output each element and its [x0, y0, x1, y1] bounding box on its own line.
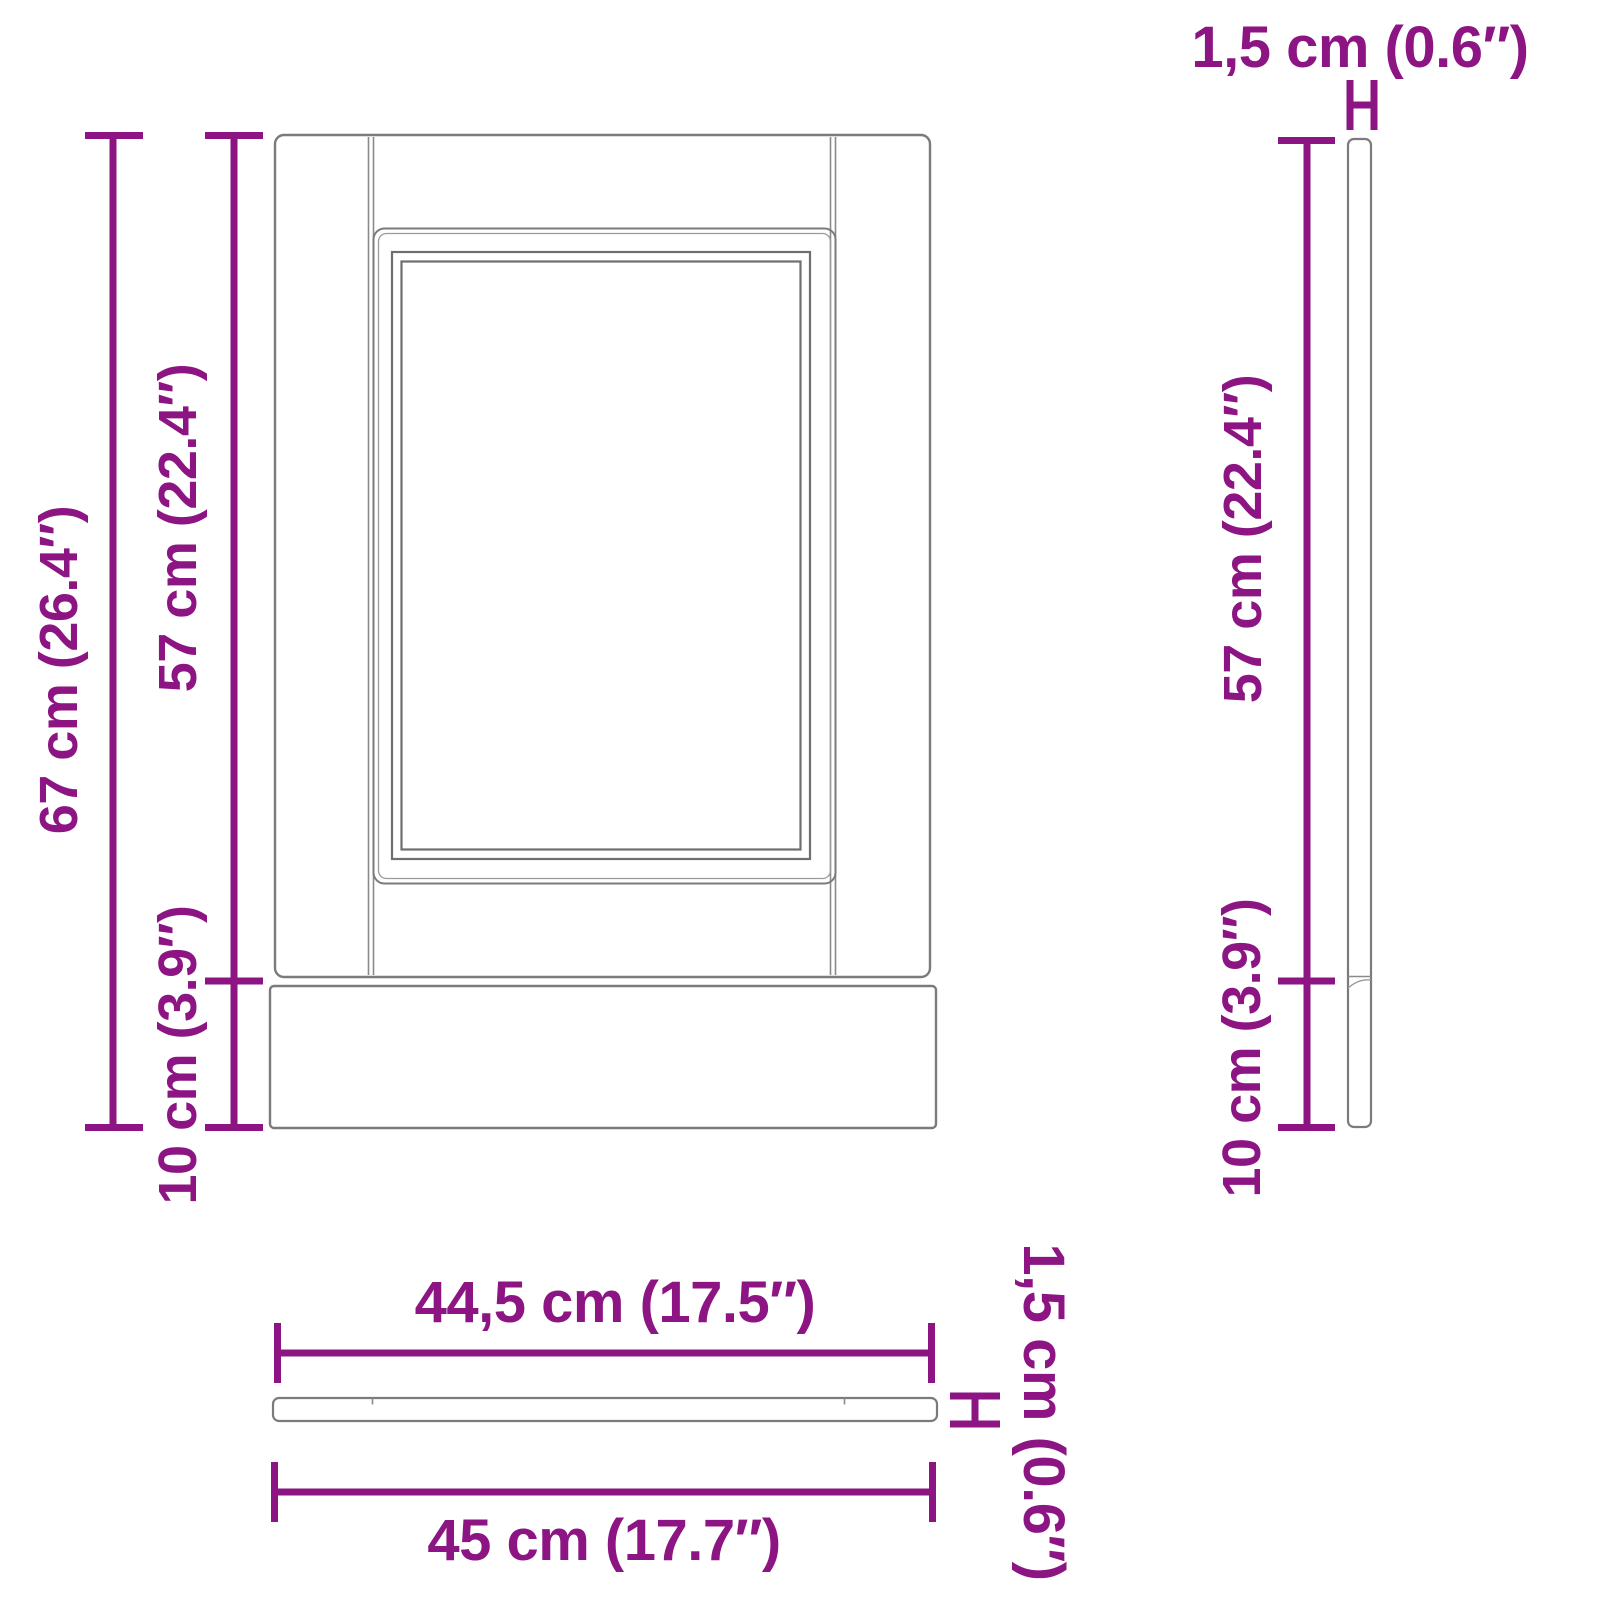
bottom-total-width-cap-right [929, 1462, 936, 1522]
bottom-door-width-cap-left [274, 1323, 281, 1383]
front-total-height-cap-top [85, 132, 143, 139]
side-height-cap-bottom [1278, 1124, 1335, 1131]
bottom-total-width-line [275, 1489, 933, 1496]
front-door-height-cap-top [205, 132, 263, 139]
dimension-diagram: 67 cm (26.4″) 57 cm (22.4″) 10 cm (3.9″) [0, 0, 1600, 1600]
side-height-dimension: 57 cm (22.4″) 10 cm (3.9″) [1212, 137, 1335, 1198]
side-view: 1,5 cm (0.6″) 57 cm (22.4″) 10 cm (3.9″) [1191, 15, 1528, 1198]
front-plinth-height-label: 10 cm (3.9″) [148, 905, 208, 1204]
front-total-height-dimension: 67 cm (26.4″) [29, 132, 143, 1131]
front-door-height-cap-bottom [205, 1124, 263, 1131]
front-total-height-cap-bottom [85, 1124, 143, 1131]
side-height-tick [1278, 978, 1335, 985]
front-door-height-tick [205, 978, 263, 985]
bottom-thickness-label: 1,5 cm (0.6″) [1011, 1243, 1076, 1580]
side-thickness-label: 1,5 cm (0.6″) [1191, 15, 1528, 80]
bottom-view: 44,5 cm (17.5″) 45 cm (17.7″) 1,5 cm (0.… [271, 1243, 1076, 1580]
side-height-cap-top [1278, 137, 1335, 144]
bottom-total-width-cap-left [271, 1462, 278, 1522]
front-total-height-label: 67 cm (26.4″) [29, 506, 89, 835]
bottom-thickness-connector [972, 1396, 979, 1424]
bottom-total-width-label: 45 cm (17.7″) [427, 1508, 780, 1573]
side-thickness-connector [1347, 102, 1378, 109]
side-thickness-dimension: 1,5 cm (0.6″) [1191, 15, 1528, 130]
front-door-height-dimension: 57 cm (22.4″) 10 cm (3.9″) [148, 132, 263, 1205]
side-panel-outline [1348, 139, 1371, 1127]
side-door-height-label: 57 cm (22.4″) [1213, 375, 1273, 704]
front-total-height-line [110, 135, 117, 1128]
front-door-height-label: 57 cm (22.4″) [148, 364, 208, 693]
front-plinth-outline [270, 986, 936, 1128]
bottom-total-width-dimension: 45 cm (17.7″) [271, 1462, 936, 1573]
bottom-thickness-dimension: 1,5 cm (0.6″) [950, 1243, 1076, 1580]
bottom-door-width-dimension: 44,5 cm (17.5″) [274, 1270, 935, 1383]
bottom-door-width-line [278, 1350, 932, 1357]
front-view [270, 135, 936, 1128]
bottom-door-width-cap-right [928, 1323, 935, 1383]
side-plinth-height-label: 10 cm (3.9″) [1212, 898, 1272, 1197]
front-dimensions: 67 cm (26.4″) 57 cm (22.4″) 10 cm (3.9″) [29, 132, 263, 1205]
bottom-door-width-label: 44,5 cm (17.5″) [415, 1270, 816, 1335]
dimension-diagram-page: 67 cm (26.4″) 57 cm (22.4″) 10 cm (3.9″) [0, 0, 1600, 1600]
